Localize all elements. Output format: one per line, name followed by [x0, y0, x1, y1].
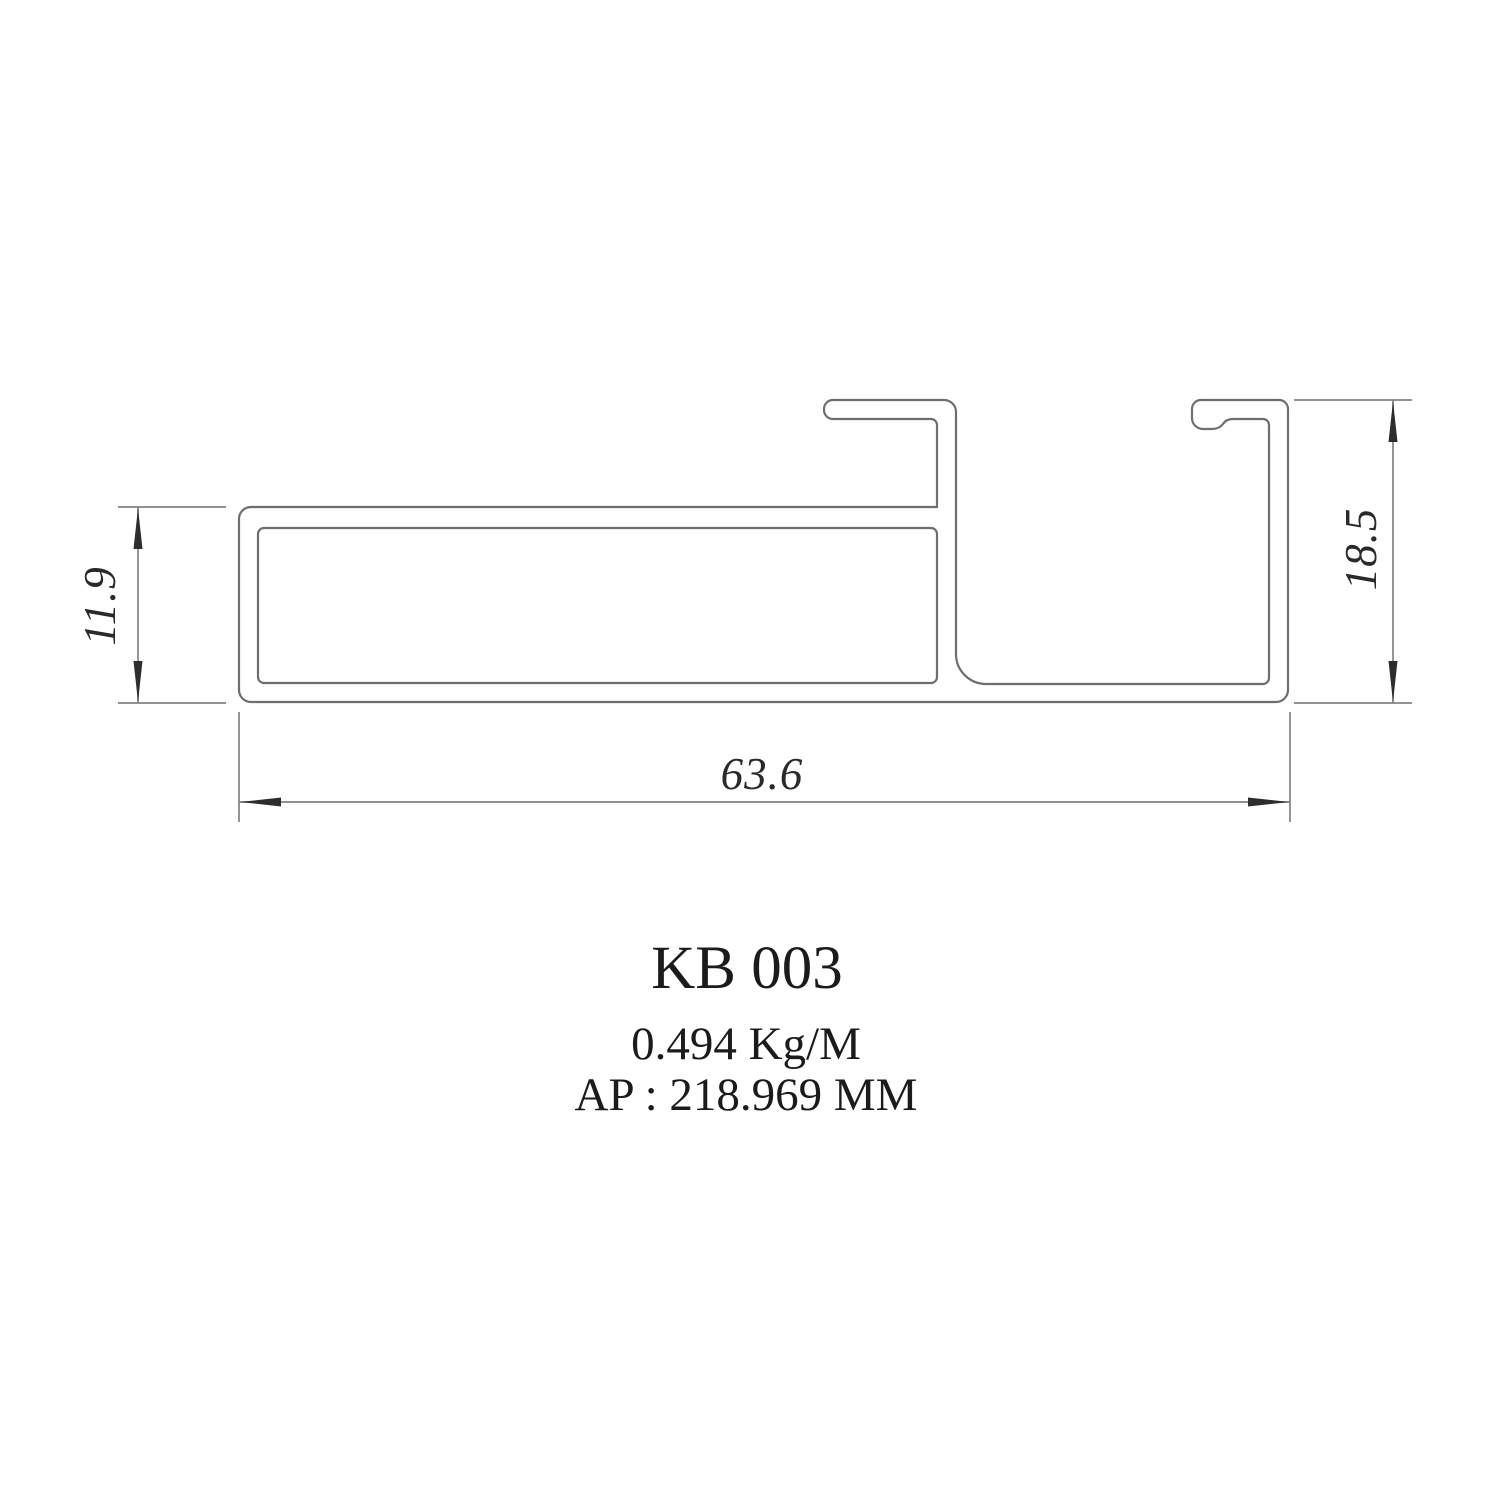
- arrowhead-down: [1389, 661, 1398, 702]
- arrowhead-right: [1248, 798, 1289, 807]
- perimeter: AP : 218.969 MM: [575, 1069, 918, 1121]
- dimension-label-overall-width: 63.6: [721, 749, 804, 799]
- arrowhead-up: [134, 508, 143, 549]
- arrowhead-up: [1389, 401, 1398, 442]
- extrusion-profile-drawing: 11.9 18.5 63.6 KB 003 0.494 Kg/M AP : 21…: [0, 0, 1500, 1500]
- profile-inner-cavity: [258, 528, 937, 683]
- profile-code: KB 003: [651, 935, 843, 1002]
- profile-section: [239, 400, 1288, 702]
- unit-weight: 0.494 Kg/M: [631, 1018, 861, 1070]
- dimension-left-height: 11.9: [75, 507, 226, 703]
- dimension-label-tube-height: 11.9: [75, 566, 125, 645]
- arrowhead-left: [240, 798, 281, 807]
- profile-outer-contour: [239, 400, 1288, 702]
- dimension-overall-width: 63.6: [239, 712, 1290, 822]
- drawing-canvas: 11.9 18.5 63.6 KB 003 0.494 Kg/M AP : 21…: [0, 0, 1500, 1500]
- dimension-label-channel-height: 18.5: [1336, 508, 1386, 591]
- arrowhead-down: [134, 661, 143, 702]
- dimension-right-height: 18.5: [1294, 400, 1412, 703]
- title-block: KB 003 0.494 Kg/M AP : 218.969 MM: [575, 935, 918, 1121]
